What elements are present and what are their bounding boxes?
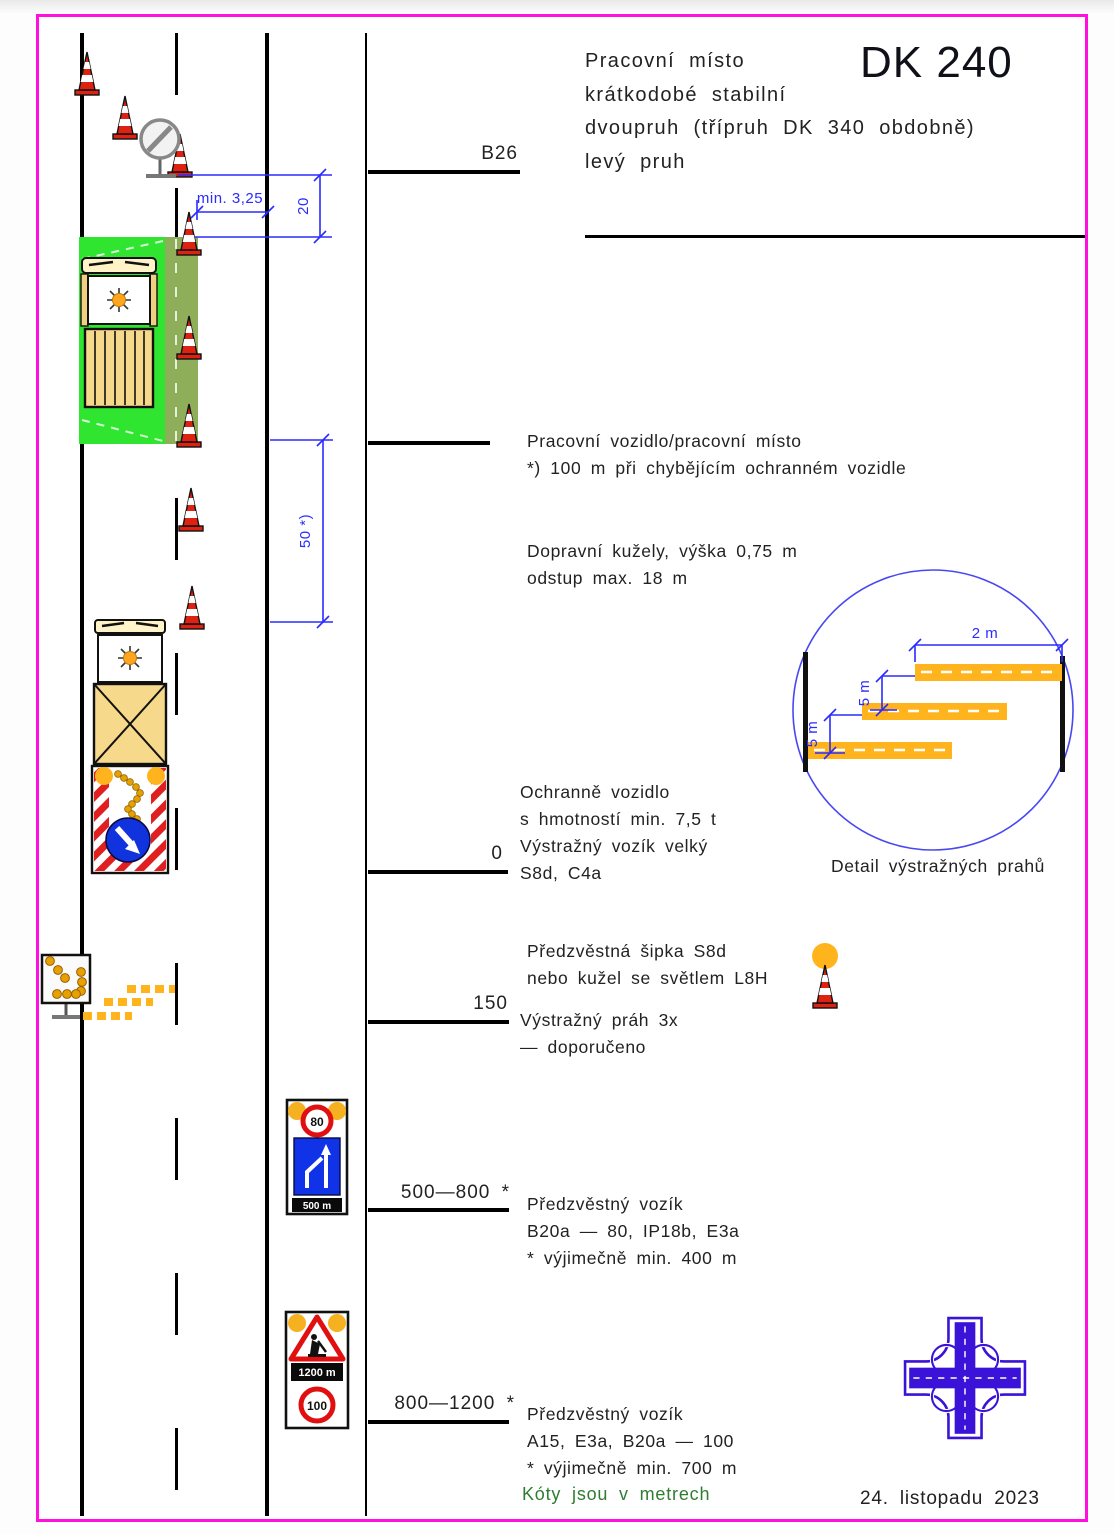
station-tick-800-1200: [368, 1420, 509, 1424]
ip18b-sign: [294, 1138, 340, 1195]
warning-threshold-bar: [104, 998, 153, 1006]
detail-dim-2m: 2 m: [972, 625, 999, 642]
note-line: Výstražný práh 3x: [520, 1007, 678, 1034]
note-line: Předzvěstný vozík: [527, 1191, 739, 1218]
warning-threshold-bar: [127, 985, 175, 993]
units-note: Kóty jsou v metrech: [522, 1484, 710, 1505]
speed-100-sign-text: 100: [307, 1399, 327, 1413]
dimension-50-group: 50 *): [258, 428, 378, 633]
note-line: S8d, C4a: [520, 860, 717, 887]
scheme-code: DK 240: [860, 38, 1013, 88]
dim-20-label: 20: [295, 197, 312, 215]
top-strip: [0, 0, 1114, 13]
protective-vehicle: [90, 618, 170, 876]
note-advance-trailer-1: Předzvěstný vozík B20a — 80, IP18b, E3a …: [527, 1191, 739, 1272]
note-line: * výjimečně min. 400 m: [527, 1245, 739, 1272]
station-tick-500-800: [368, 1208, 509, 1212]
note-line: Předzvěstný vozík: [527, 1401, 737, 1428]
note-guard-vehicle: Ochranně vozidlo s hmotností min. 7,5 t …: [520, 779, 717, 887]
traffic-cone: [179, 584, 205, 630]
note-line: odstup max. 18 m: [527, 565, 797, 592]
note-advance-trailer-2: Předzvěstný vozík A15, E3a, B20a — 100 *…: [527, 1401, 737, 1482]
station-tick-b26: [368, 170, 520, 174]
threshold-detail-view: 2 m 5 m 5 m: [785, 558, 1085, 868]
note-line: Ochranně vozidlo: [520, 779, 717, 806]
note-cones: Dopravní kužely, výška 0,75 m odstup max…: [527, 538, 797, 592]
warning-threshold-bar: [83, 1012, 132, 1020]
note-line: Výstražný vozík velký: [520, 833, 717, 860]
note-line: s hmotností min. 7,5 t: [520, 806, 717, 833]
speed-80-sign-text: 80: [310, 1115, 324, 1129]
traffic-cone: [176, 314, 202, 360]
detail-dim-5m-lower: 5 m: [804, 721, 821, 748]
note-line: nebo kužel se světlem L8H: [527, 965, 768, 992]
note-line: B20a — 80, IP18b, E3a: [527, 1218, 739, 1245]
dimension-top-group: min. 3,25 20: [168, 162, 343, 257]
e3a-plate-text: 1200 m: [298, 1367, 336, 1379]
title-line: dvoupruh (třípruh DK 340 obdobně): [585, 112, 975, 146]
station-tick-0: [368, 870, 508, 874]
interchange-logo: [903, 1316, 1027, 1440]
station-label-0: 0: [368, 843, 503, 865]
note-work-place: Pracovní vozidlo/pracovní místo *) 100 m…: [527, 428, 906, 482]
traffic-cone: [74, 50, 100, 96]
note-threshold: Výstražný práh 3x — doporučeno: [520, 1007, 678, 1061]
note-line: * výjimečně min. 700 m: [527, 1455, 737, 1482]
station-label-800-1200: 800—1200 *: [368, 1393, 515, 1415]
note-advance-arrow: Předzvěstná šipka S8d nebo kužel se svět…: [527, 938, 768, 992]
date-label: 24. listopadu 2023: [860, 1488, 1040, 1510]
station-reference-line: [365, 33, 367, 1516]
note-line: — doporučeno: [520, 1034, 678, 1061]
e3a-plate-text: 500 m: [303, 1201, 331, 1212]
note-line: Pracovní vozidlo/pracovní místo: [527, 428, 906, 455]
dim-50-label: 50 *): [297, 514, 314, 548]
detail-caption: Detail výstražných prahů: [798, 856, 1078, 877]
title-line: levý pruh: [585, 146, 975, 180]
station-label-b26: B26: [368, 143, 518, 165]
dim-min-lane-label: min. 3,25: [197, 190, 263, 207]
advance-trailer-1: 80 500 m: [285, 1098, 349, 1216]
note-line: Předzvěstná šipka S8d: [527, 938, 768, 965]
title-underline: [585, 235, 1085, 238]
work-vehicle: [79, 256, 159, 411]
note-line: A15, E3a, B20a — 100: [527, 1428, 737, 1455]
station-label-150: 150: [368, 993, 508, 1015]
note-line: *) 100 m při chybějícím ochranném vozidl…: [527, 455, 906, 482]
note-line: Dopravní kužely, výška 0,75 m: [527, 538, 797, 565]
traffic-cone: [176, 402, 202, 448]
detail-dimensions: [815, 639, 1068, 759]
traffic-cone: [178, 486, 204, 532]
detail-dim-5m-upper: 5 m: [856, 680, 873, 707]
traffic-cone: [112, 94, 138, 140]
advance-trailer-2: 1200 m 100: [284, 1310, 350, 1430]
station-label-500-800: 500—800 *: [368, 1182, 510, 1204]
station-tick-work: [368, 441, 490, 445]
diagram-page: 80 500 m 1200 m 100: [0, 0, 1114, 1534]
detail-threshold-bars: [808, 664, 1062, 759]
station-tick-150: [368, 1020, 509, 1024]
cone-with-light-l8h: [806, 940, 844, 1010]
